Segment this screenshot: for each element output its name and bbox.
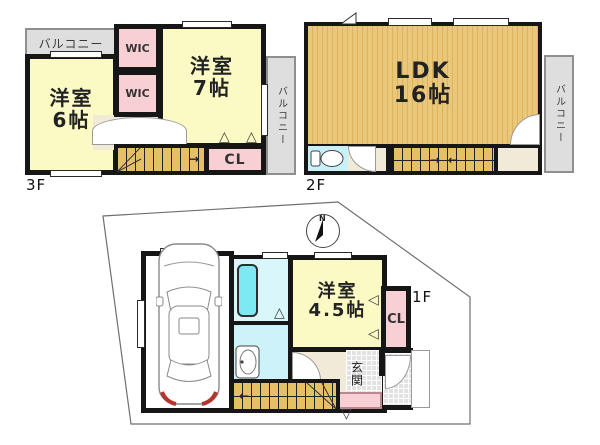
window-bath-top [262,252,288,259]
closet-1f: CL [381,286,411,352]
window-garage-left [137,300,145,348]
closet-1f-door-marker-icon: ◁ [368,327,379,341]
washbasin-icon [235,345,261,379]
floor-label-1f: 1F [412,288,432,306]
room-1f-label: 洋室 4.5帖 [290,282,385,321]
compass: N [306,214,340,248]
entrance-step [411,350,430,408]
car-top-view [156,240,222,408]
closet-1f-label: CL [387,312,405,327]
window-1f-top [314,252,352,259]
stairs-1f-arrow-icon: ← [239,390,249,402]
entrance-label-box: 玄関 [348,354,366,394]
floor-plan-canvas: バルコニー → CL △ △ バルコニー 洋室 6帖 洋室 7帖 WIC WIC… [0,0,600,445]
door-marker-bottom-icon: ▽ [341,407,352,421]
entrance-label: 玄関 [349,361,366,387]
bath-door-marker-icon: △ [274,306,285,320]
bathtub [237,264,258,317]
compass-needle-icon [307,215,338,246]
stairs-1f-winder-lines [303,383,337,410]
